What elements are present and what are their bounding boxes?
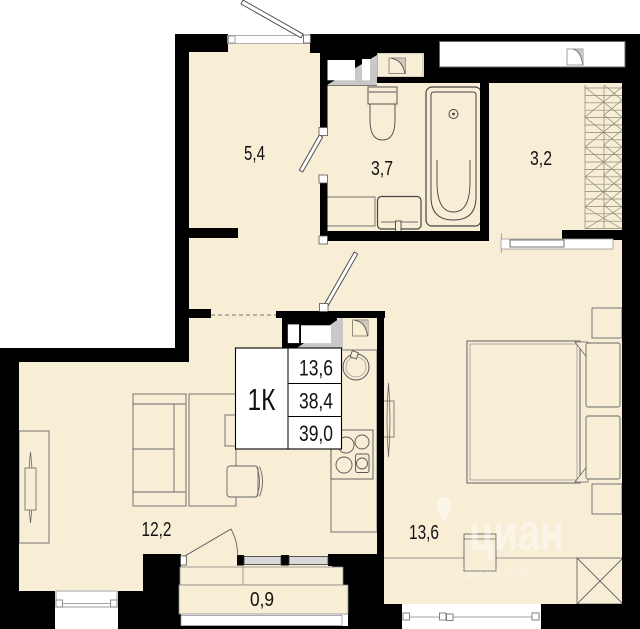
svg-text:1К: 1К bbox=[248, 382, 276, 417]
svg-text:НЕДВИЖИМОСТЬ: НЕДВИЖИМОСТЬ bbox=[452, 566, 531, 580]
svg-text:38,4: 38,4 bbox=[299, 389, 333, 414]
svg-text:0,9: 0,9 bbox=[250, 589, 274, 611]
svg-text:12,2: 12,2 bbox=[142, 519, 172, 541]
svg-text:13,6: 13,6 bbox=[409, 522, 439, 544]
svg-text:13,6: 13,6 bbox=[299, 356, 333, 381]
svg-text:циан: циан bbox=[469, 504, 564, 562]
svg-text:3,2: 3,2 bbox=[530, 148, 552, 170]
svg-text:5,4: 5,4 bbox=[244, 143, 265, 165]
svg-text:3,7: 3,7 bbox=[371, 158, 393, 180]
svg-text:39,0: 39,0 bbox=[299, 421, 333, 446]
